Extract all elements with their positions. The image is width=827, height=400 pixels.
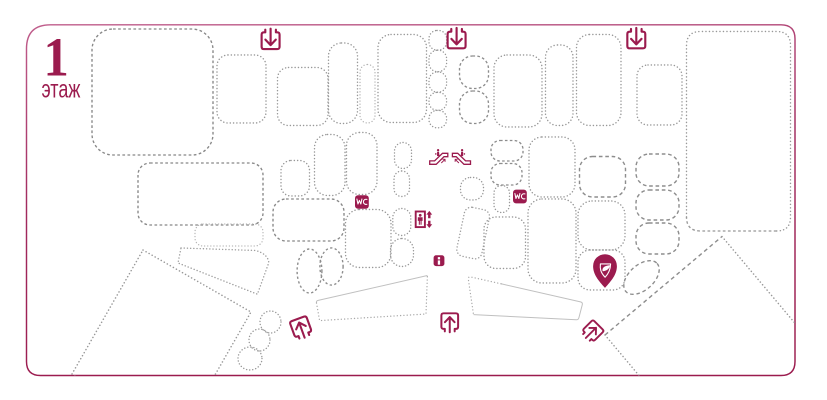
svg-text:этаж: этаж — [42, 75, 81, 104]
